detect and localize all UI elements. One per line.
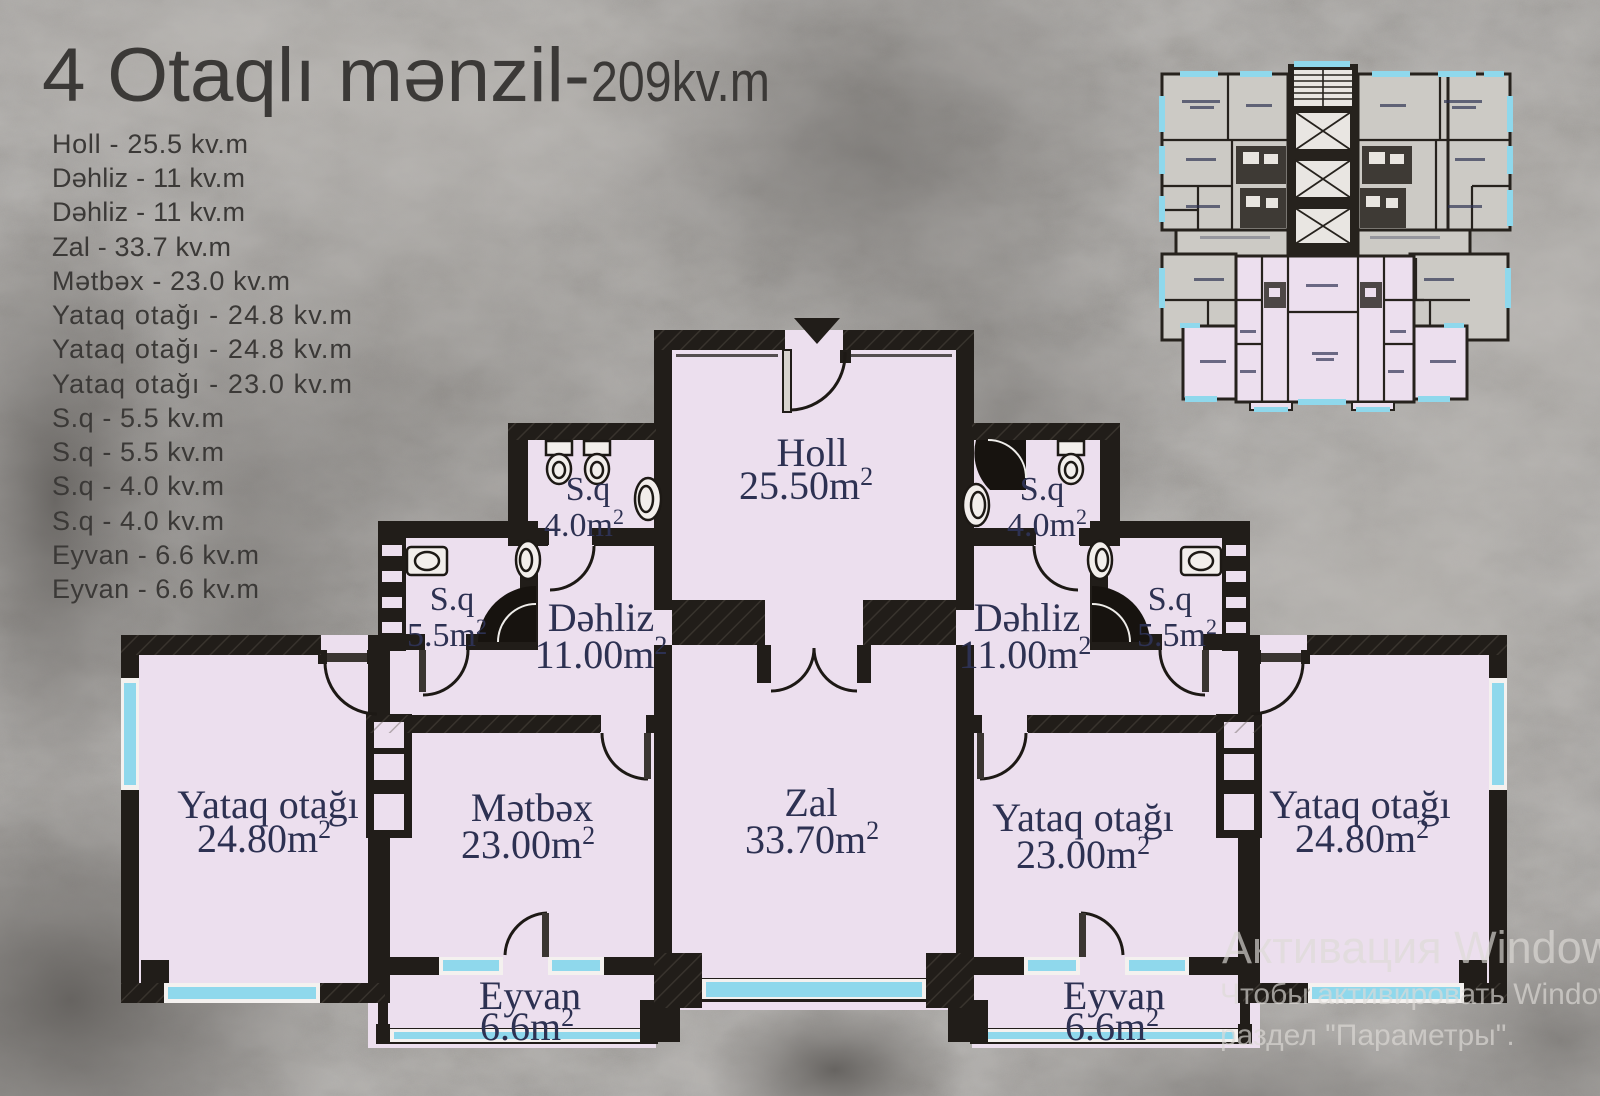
svg-text:6.6m2: 6.6m2 — [1065, 1003, 1159, 1049]
svg-text:Dəhliz - 11 kv.m: Dəhliz - 11 kv.m — [52, 197, 245, 227]
svg-text:Yataq otağı - 24.8 kv.m: Yataq otağı - 24.8 kv.m — [52, 334, 352, 364]
svg-text:4.0m2: 4.0m2 — [1007, 504, 1087, 544]
svg-text:24.80m2: 24.80m2 — [1295, 815, 1429, 861]
svg-text:24.80m2: 24.80m2 — [197, 815, 331, 861]
svg-text:S.q: S.q — [430, 581, 474, 618]
svg-text:Yataq otağı - 23.0 kv.m: Yataq otağı - 23.0 kv.m — [52, 369, 352, 399]
svg-text:Yataq otağı - 24.8 kv.m: Yataq otağı - 24.8 kv.m — [52, 300, 352, 330]
svg-text:33.70m2: 33.70m2 — [745, 816, 879, 862]
svg-text:23.00m2: 23.00m2 — [461, 821, 595, 867]
svg-text:11.00m2: 11.00m2 — [535, 631, 668, 677]
svg-text:6.6m2: 6.6m2 — [480, 1003, 574, 1049]
svg-text:Eyvan - 6.6 kv.m: Eyvan - 6.6 kv.m — [52, 574, 259, 604]
svg-text:25.50m2: 25.50m2 — [739, 462, 873, 508]
svg-text:5.5m2: 5.5m2 — [1137, 614, 1217, 654]
svg-text:S.q: S.q — [1020, 471, 1064, 508]
svg-text:S.q - 4.0 kv.m: S.q - 4.0 kv.m — [52, 471, 224, 501]
svg-text:11.00m2: 11.00m2 — [959, 631, 1092, 677]
svg-text:Dəhliz - 11 kv.m: Dəhliz - 11 kv.m — [52, 163, 245, 193]
svg-text:Eyvan - 6.6 kv.m: Eyvan - 6.6 kv.m — [52, 540, 259, 570]
svg-text:4.0m2: 4.0m2 — [544, 504, 624, 544]
svg-text:Mətbəx - 23.0 kv.m: Mətbəx - 23.0 kv.m — [52, 266, 290, 296]
svg-text:S.q - 4.0 kv.m: S.q - 4.0 kv.m — [52, 506, 224, 536]
svg-text:S.q - 5.5 kv.m: S.q - 5.5 kv.m — [52, 403, 224, 433]
svg-text:23.00m2: 23.00m2 — [1016, 831, 1150, 877]
svg-text:209kv.m: 209kv.m — [591, 50, 770, 114]
svg-text:S.q: S.q — [1148, 581, 1192, 618]
svg-text:S.q - 5.5 kv.m: S.q - 5.5 kv.m — [52, 437, 224, 467]
svg-text:Активация Windows: Активация Windows — [1222, 922, 1600, 973]
svg-text:5.5m2: 5.5m2 — [407, 614, 487, 654]
svg-text:Zal - 33.7 kv.m: Zal - 33.7 kv.m — [52, 232, 231, 262]
svg-text:Чтобы активировать Windows, пе: Чтобы активировать Windows, перейдите — [1220, 978, 1600, 1011]
svg-text:S.q: S.q — [566, 471, 610, 508]
svg-text:Holl - 25.5 kv.m: Holl - 25.5 kv.m — [52, 129, 248, 159]
svg-text:4 Otaqlı mənzil-: 4 Otaqlı mənzil- — [42, 33, 590, 118]
svg-text:раздел "Параметры".: раздел "Параметры". — [1220, 1019, 1515, 1052]
